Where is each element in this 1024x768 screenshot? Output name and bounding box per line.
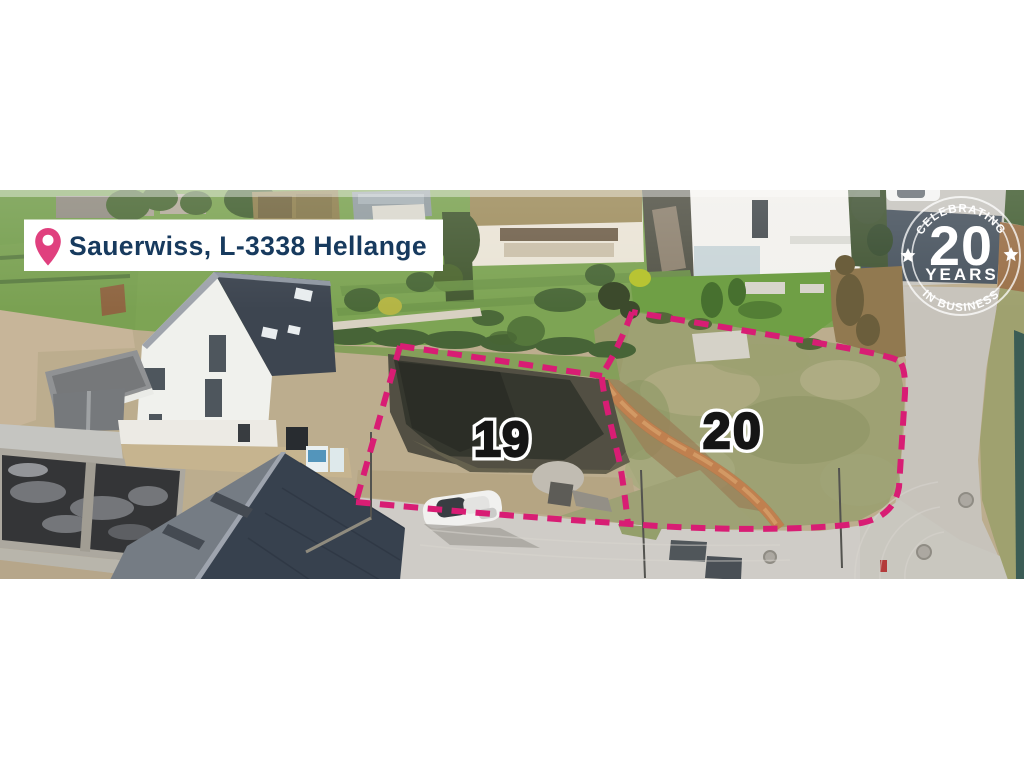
svg-text:19: 19 <box>474 413 531 467</box>
svg-text:YEARS: YEARS <box>925 265 999 284</box>
svg-text:20: 20 <box>703 403 764 459</box>
svg-text:Sauerwiss, L-3338 Hellange: Sauerwiss, L-3338 Hellange <box>69 231 427 261</box>
